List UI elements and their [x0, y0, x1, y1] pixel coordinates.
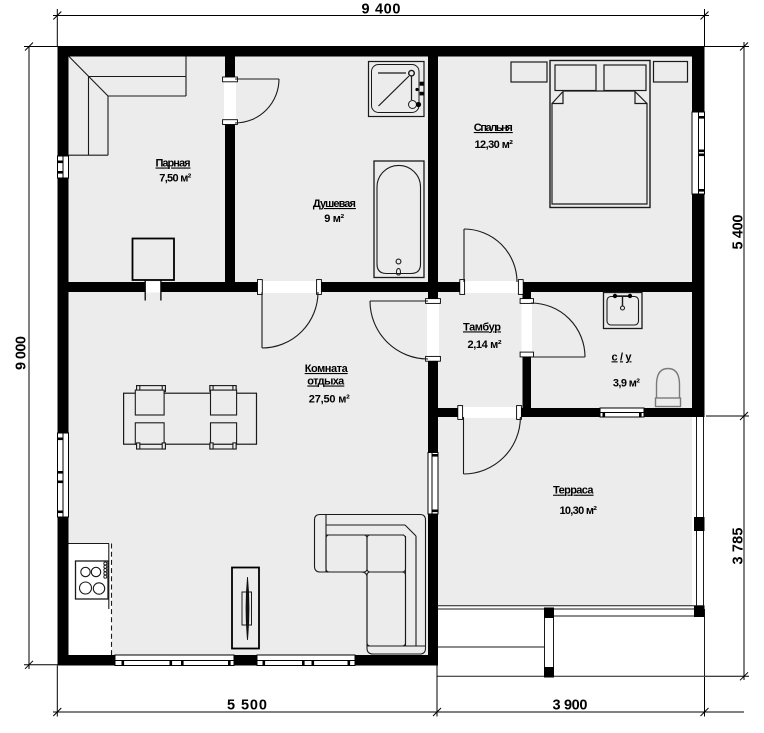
svg-text:5 400: 5 400 — [730, 215, 746, 250]
svg-text:Парная: Парная — [156, 158, 191, 170]
svg-text:9 м²: 9 м² — [324, 213, 344, 225]
svg-text:12,30 м²: 12,30 м² — [474, 139, 513, 151]
svg-text:с/у: с/у — [612, 351, 633, 363]
svg-text:отдыха: отдыха — [307, 376, 345, 388]
svg-text:9 000: 9 000 — [13, 336, 29, 370]
svg-text:2,14 м²: 2,14 м² — [468, 339, 502, 351]
svg-text:Терраса: Терраса — [553, 485, 594, 497]
svg-text:Спальня: Спальня — [474, 122, 513, 134]
svg-text:3,9 м²: 3,9 м² — [613, 378, 640, 390]
svg-text:3 900: 3 900 — [553, 698, 588, 714]
svg-text:5 500: 5 500 — [227, 698, 267, 714]
svg-text:7,50 м²: 7,50 м² — [159, 173, 191, 185]
svg-text:27,50 м²: 27,50 м² — [309, 394, 350, 406]
svg-text:9 400: 9 400 — [362, 1, 401, 17]
svg-text:Комната: Комната — [305, 363, 349, 375]
svg-text:3 785: 3 785 — [730, 528, 746, 565]
svg-text:Душевая: Душевая — [313, 198, 356, 210]
svg-text:Тамбур: Тамбур — [463, 321, 501, 333]
svg-text:10,30 м²: 10,30 м² — [559, 505, 597, 517]
